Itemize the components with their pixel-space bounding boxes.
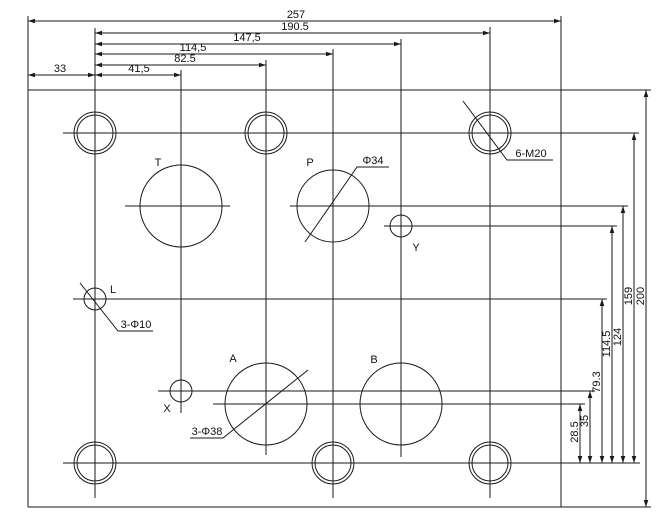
pilot-y-label: Y — [412, 242, 420, 254]
dim-arrow-bottom-35 — [588, 456, 593, 463]
pilot-l-label: L — [110, 284, 116, 296]
dim-arrow-left-190.5 — [95, 31, 102, 36]
dim-arrow-left-41,5 — [95, 73, 102, 78]
dim-text-147,5: 147,5 — [233, 32, 261, 44]
dim-text-114.5: 114.5 — [601, 331, 613, 358]
dim-arrow-right-147,5 — [394, 42, 401, 47]
dim-arrow-right-82.5 — [259, 63, 266, 68]
pilot-x-label: X — [163, 403, 171, 415]
dim-arrow-bottom-124 — [621, 456, 626, 463]
dim-arrow-bottom-159 — [632, 456, 637, 463]
port-a-label: A — [229, 353, 237, 365]
note-3-phi10-text: 3-Φ10 — [121, 319, 152, 331]
note-6-m20-text: 6-M20 — [515, 148, 546, 160]
dim-arrow-left-147,5 — [95, 42, 102, 47]
dim-arrow-bottom-28.5 — [578, 456, 583, 463]
dim-arrow-top-200 — [644, 90, 649, 97]
dim-arrow-bottom-200 — [644, 500, 649, 507]
dim-arrow-right-33 — [88, 73, 95, 78]
port-b-label: B — [370, 354, 377, 366]
dim-text-28.5: 28.5 — [569, 421, 581, 442]
dim-arrow-bottom-114.5 — [610, 456, 615, 463]
dim-arrow-left-33 — [28, 73, 35, 78]
note-phi34-text: Φ34 — [362, 155, 383, 167]
dim-arrow-right-114,5 — [326, 52, 333, 57]
plate-technical-drawing: TPABLXY257190.5147,5114,582.541,53320015… — [0, 0, 666, 527]
dim-text-41,5: 41,5 — [128, 63, 149, 75]
dim-arrow-top-124 — [621, 206, 626, 213]
dim-arrow-top-114.5 — [610, 226, 615, 233]
dim-arrow-top-159 — [632, 133, 637, 140]
dim-arrow-left-257 — [28, 19, 35, 24]
dim-arrow-top-79.3 — [600, 299, 605, 306]
dim-arrow-top-28.5 — [578, 404, 583, 411]
dim-arrow-left-114,5 — [95, 52, 102, 57]
dim-text-257: 257 — [287, 9, 305, 21]
dim-text-82.5: 82.5 — [174, 53, 195, 65]
dim-text-200: 200 — [635, 287, 647, 305]
port-t-label: T — [155, 157, 162, 169]
dim-text-190.5: 190.5 — [281, 21, 309, 33]
dim-arrow-right-41,5 — [174, 73, 181, 78]
note-phi34-leader-line — [305, 167, 389, 242]
dim-text-124: 124 — [612, 328, 624, 346]
note-3-phi38-text: 3-Φ38 — [192, 426, 223, 438]
dim-arrow-left-82.5 — [95, 63, 102, 68]
dim-arrow-right-190.5 — [483, 31, 490, 36]
dim-text-159: 159 — [623, 287, 635, 305]
dim-text-79.3: 79.3 — [591, 371, 603, 392]
port-p-label: P — [306, 157, 313, 169]
dim-arrow-right-257 — [554, 19, 561, 24]
drawing-page: TPABLXY257190.5147,5114,582.541,53320015… — [0, 0, 666, 527]
dim-arrow-bottom-79.3 — [600, 456, 605, 463]
dim-text-33: 33 — [54, 63, 66, 75]
